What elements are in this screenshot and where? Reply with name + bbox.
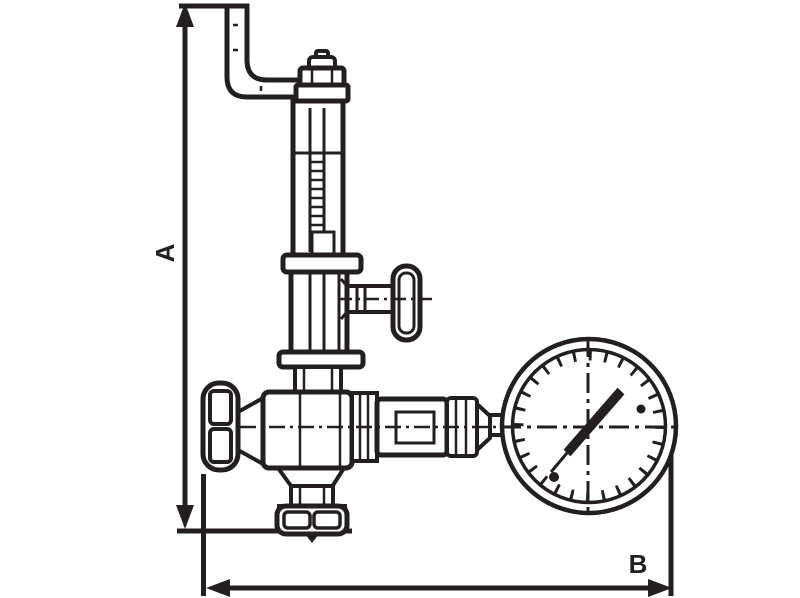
bottom-outlet-flange bbox=[277, 468, 347, 543]
bent-inlet-pipe bbox=[225, 6, 303, 97]
bonnet-adapter bbox=[295, 367, 341, 392]
bonnet-tube bbox=[293, 101, 343, 256]
arrowhead-down bbox=[176, 505, 194, 529]
t-handle-grip bbox=[393, 266, 420, 340]
drawing-canvas: A B bbox=[0, 0, 800, 598]
needle-tail-dot bbox=[549, 472, 559, 482]
arrowhead-right bbox=[648, 579, 672, 597]
upper-flange bbox=[283, 255, 361, 272]
valve-body bbox=[263, 392, 352, 468]
adjustment-cap bbox=[296, 51, 348, 101]
label-b: B bbox=[629, 549, 648, 579]
label-a: A bbox=[150, 243, 180, 262]
handwheel-hub bbox=[238, 398, 263, 464]
arrowhead-left bbox=[206, 579, 230, 597]
pressure-gauge bbox=[501, 337, 678, 517]
lower-flange bbox=[279, 352, 363, 367]
gauge-stop-pin bbox=[637, 405, 646, 414]
outlet-tip bbox=[305, 534, 319, 543]
spring-chamber bbox=[279, 255, 363, 392]
t-handle bbox=[338, 266, 432, 340]
